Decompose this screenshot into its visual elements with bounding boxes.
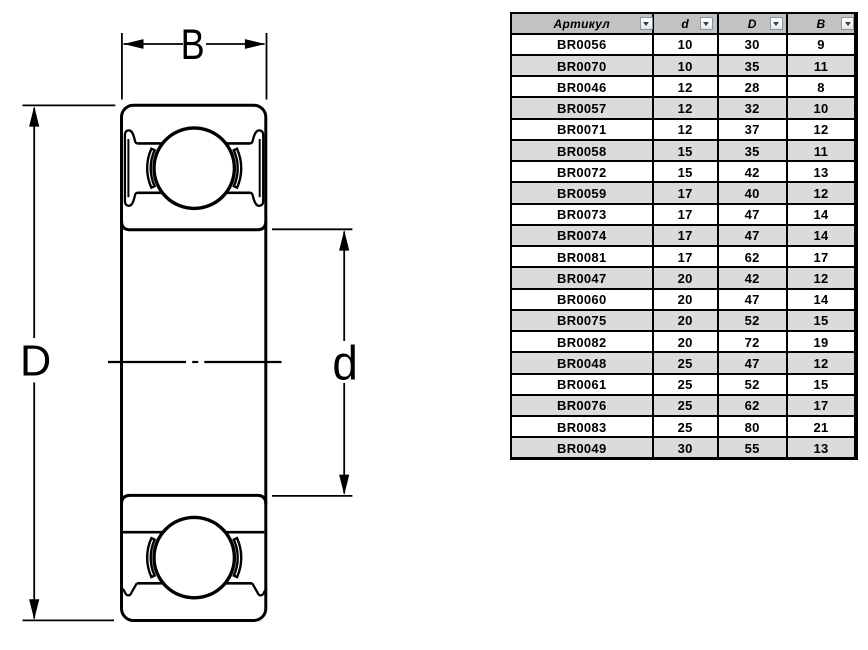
svg-text:D: D — [20, 337, 51, 385]
svg-text:B: B — [181, 22, 205, 69]
svg-text:d: d — [332, 337, 358, 391]
